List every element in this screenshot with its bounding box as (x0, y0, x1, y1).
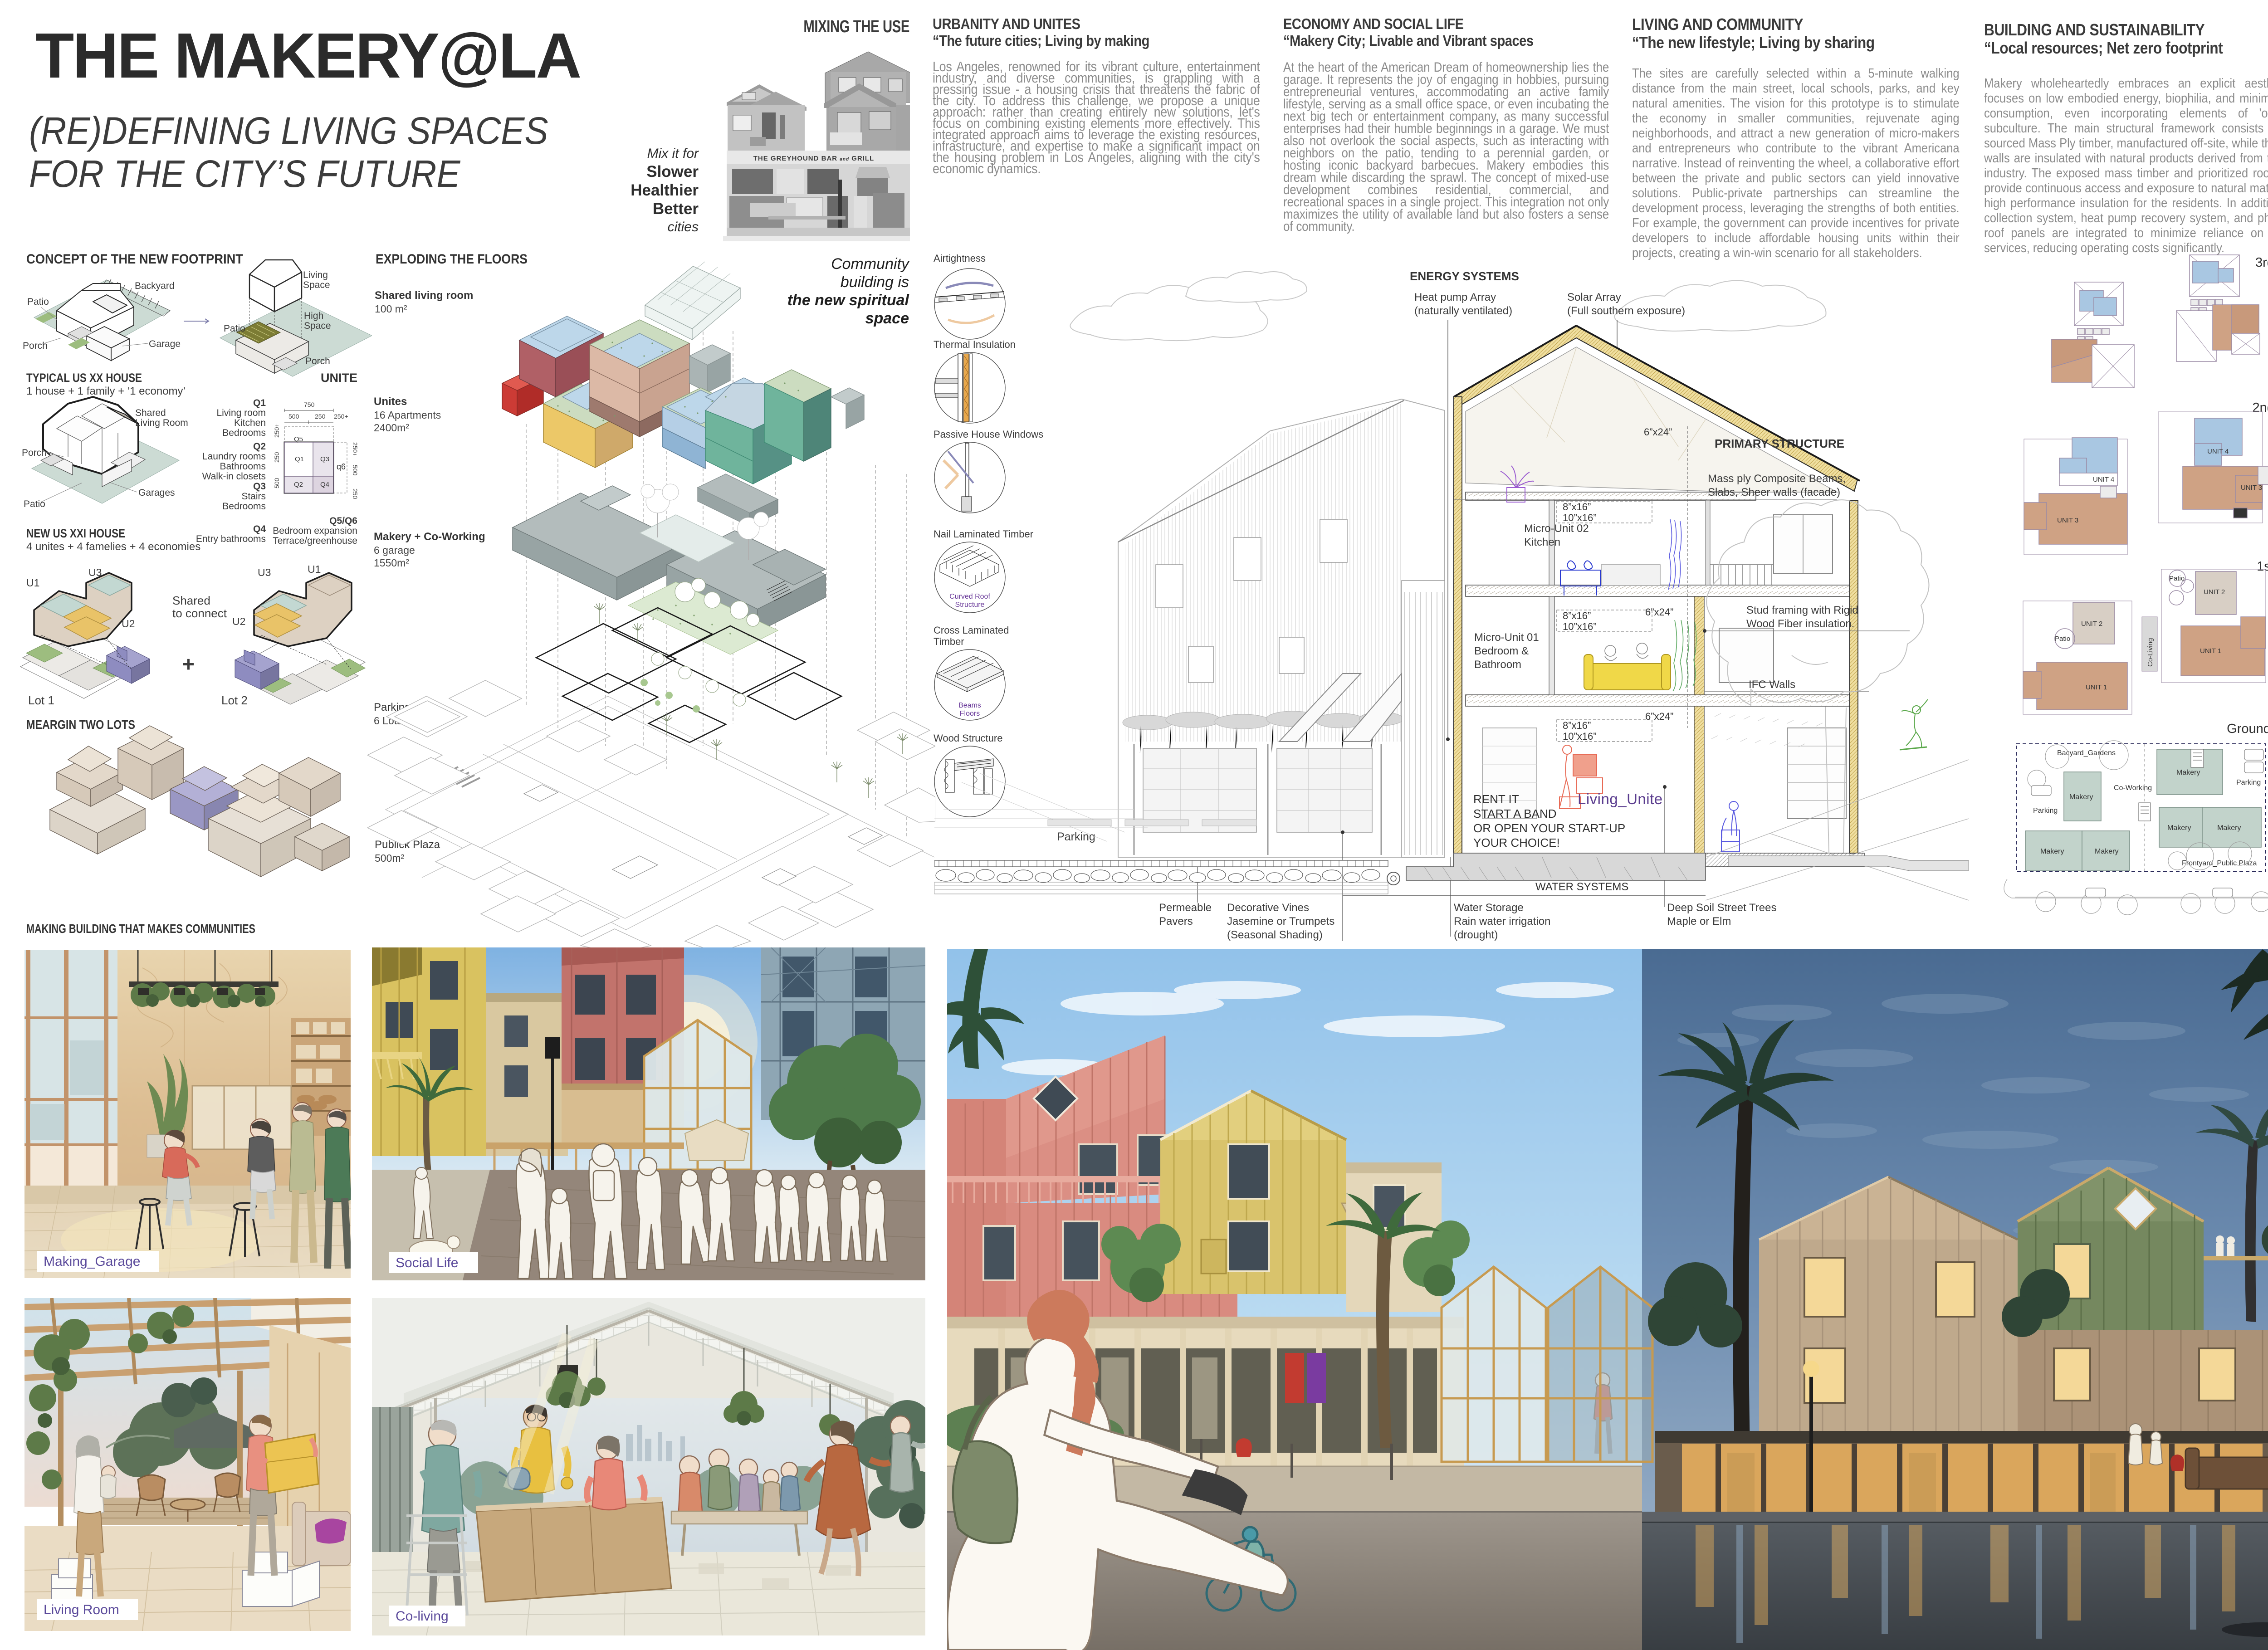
svg-text:250+: 250+ (334, 413, 348, 420)
svg-text:Solar Array: Solar Array (1567, 291, 1621, 303)
svg-text:Bedroom &: Bedroom & (1474, 645, 1529, 657)
svg-text:6”x24”: 6”x24” (1644, 426, 1672, 438)
svg-text:Living Room: Living Room (44, 1602, 119, 1617)
svg-text:Wood Fiber insulation.: Wood Fiber insulation. (1746, 618, 1854, 630)
svg-text:UNIT 2: UNIT 2 (2081, 620, 2102, 628)
svg-text:Bedroom expansion: Bedroom expansion (273, 526, 357, 536)
svg-text:Bathroom: Bathroom (1474, 659, 1521, 671)
svg-text:500: 500 (352, 465, 359, 476)
svg-text:Micro-Unit 02: Micro-Unit 02 (1524, 522, 1589, 535)
svg-text:Parking: Parking (2033, 807, 2058, 815)
svg-text:TYPICAL US XX HOUSE: TYPICAL US XX HOUSE (26, 371, 142, 385)
svg-text:q6: q6 (337, 462, 346, 471)
svg-text:Ground Floor: Ground Floor (2227, 722, 2268, 736)
svg-text:Q4: Q4 (253, 524, 266, 534)
svg-text:U2: U2 (232, 615, 245, 627)
svg-text:Patio: Patio (27, 297, 49, 307)
svg-text:6 garage: 6 garage (374, 544, 415, 556)
svg-text:Micro-Unit 01: Micro-Unit 01 (1474, 631, 1539, 644)
svg-text:START A BAND: START A BAND (1473, 807, 1557, 820)
svg-text:Makery: Makery (2176, 769, 2200, 776)
svg-text:Makery + Co-Working: Makery + Co-Working (374, 531, 485, 543)
svg-text:6”x24”: 6”x24” (1645, 711, 1673, 722)
svg-text:Living room: Living room (216, 408, 266, 418)
svg-text:Space: Space (303, 280, 330, 290)
svg-text:OR OPEN YOUR START-UP: OR OPEN YOUR START-UP (1473, 821, 1625, 835)
svg-text:UNIT 4: UNIT 4 (2093, 476, 2114, 483)
svg-text:Laundry rooms: Laundry rooms (202, 451, 266, 462)
svg-text:Unites: Unites (374, 395, 407, 408)
svg-text:High: High (304, 311, 323, 321)
svg-text:2400m²: 2400m² (374, 422, 409, 434)
svg-text:1550m²: 1550m² (374, 557, 409, 569)
svg-text:Q5: Q5 (294, 435, 303, 443)
svg-text:Permeable: Permeable (1159, 902, 1212, 914)
svg-text:building is: building is (841, 273, 909, 291)
svg-text:Living Room: Living Room (135, 418, 188, 428)
svg-text:Patio: Patio (2169, 575, 2185, 582)
svg-text:Shared: Shared (172, 594, 210, 607)
svg-text:Makery: Makery (2069, 793, 2093, 801)
svg-text:Rain water irrigation: Rain water irrigation (1454, 915, 1550, 928)
svg-text:the new spiritual: the new spiritual (787, 292, 910, 309)
svg-text:Deep Soil Street Trees: Deep Soil Street Trees (1667, 902, 1776, 914)
svg-text:Patio: Patio (224, 323, 245, 334)
svg-text:Terrace/greenhouse: Terrace/greenhouse (273, 536, 357, 546)
svg-text:YOUR CHOICE!: YOUR CHOICE! (1473, 836, 1560, 849)
svg-text:6”x24”: 6”x24” (1645, 606, 1673, 618)
svg-text:Kitchen: Kitchen (1524, 536, 1560, 548)
svg-text:500: 500 (288, 413, 299, 420)
svg-text:10”x16”: 10”x16” (1563, 512, 1597, 523)
svg-text:THE GREYHOUND BAR and GRILL: THE GREYHOUND BAR and GRILL (753, 155, 874, 162)
svg-text:10”x16”: 10”x16” (1563, 621, 1597, 632)
svg-text:4 unites + 4 famelies + 4 econ: 4 unites + 4 famelies + 4 economies (26, 541, 200, 553)
svg-text:500: 500 (273, 478, 280, 488)
svg-text:Stairs: Stairs (241, 491, 266, 502)
svg-text:Q5/Q6: Q5/Q6 (329, 516, 357, 526)
svg-text:UNIT 3: UNIT 3 (2057, 517, 2078, 524)
svg-text:Community: Community (831, 255, 910, 273)
svg-text:RENT IT: RENT IT (1473, 792, 1519, 806)
svg-text:(Full southern exposure): (Full southern exposure) (1567, 305, 1685, 317)
svg-text:750: 750 (304, 401, 315, 408)
svg-text:Decorative Vines: Decorative Vines (1227, 902, 1309, 914)
svg-text:Garages: Garages (138, 488, 175, 498)
svg-text:Space: Space (304, 321, 331, 331)
svg-text:1 house + 1 family + ‘1 econom: 1 house + 1 family + ‘1 economy’ (26, 385, 186, 397)
svg-text:Entry bathrooms: Entry bathrooms (196, 534, 266, 544)
svg-text:Co-living: Co-living (396, 1609, 449, 1624)
svg-text:2nd Floor: 2nd Floor (2252, 400, 2268, 415)
svg-text:Frontyard_Public Plaza: Frontyard_Public Plaza (2182, 859, 2257, 867)
svg-text:Living: Living (303, 270, 328, 280)
svg-text:space: space (865, 310, 909, 327)
svg-text:3rd Floor: 3rd Floor (2255, 255, 2268, 270)
svg-text:Co-Living: Co-Living (2146, 638, 2154, 667)
svg-text:Heat pump Array: Heat pump Array (1414, 291, 1496, 303)
svg-text:Patio: Patio (24, 499, 45, 509)
svg-text:EXPLODING THE FLOORS: EXPLODING THE FLOORS (376, 252, 528, 267)
svg-text:U3: U3 (88, 566, 102, 578)
svg-text:Q3: Q3 (253, 481, 266, 492)
svg-text:Water Storage: Water Storage (1454, 902, 1524, 914)
svg-text:Parking: Parking (2236, 779, 2261, 786)
svg-text:NEW US XXI HOUSE: NEW US XXI HOUSE (26, 527, 125, 540)
svg-text:Shared living room: Shared living room (375, 289, 473, 302)
svg-text:+: + (182, 652, 195, 676)
svg-text:Makery: Makery (2167, 824, 2191, 832)
svg-text:250: 250 (352, 488, 359, 499)
svg-text:to connect: to connect (172, 606, 227, 620)
svg-text:Shared: Shared (135, 408, 166, 418)
svg-text:Makery: Makery (2217, 824, 2241, 832)
svg-text:Q2: Q2 (294, 481, 303, 488)
svg-text:Q3: Q3 (320, 455, 329, 463)
svg-text:500m²: 500m² (375, 852, 405, 864)
svg-text:Bacyard_Gardens: Bacyard_Gardens (2057, 749, 2116, 757)
svg-text:UNIT 4: UNIT 4 (2207, 448, 2229, 455)
svg-text:8”x16”: 8”x16” (1563, 720, 1591, 731)
svg-text:Q4: Q4 (320, 481, 329, 488)
svg-text:U1: U1 (308, 563, 321, 575)
svg-text:8”x16”: 8”x16” (1563, 610, 1591, 621)
svg-text:Garage: Garage (149, 339, 181, 349)
svg-text:Bedrooms: Bedrooms (222, 501, 266, 512)
svg-text:Walk-in closets: Walk-in closets (202, 471, 266, 482)
svg-text:(naturally ventilated): (naturally ventilated) (1414, 305, 1512, 317)
svg-text:Porch: Porch (23, 341, 48, 351)
svg-text:Porch: Porch (305, 356, 330, 366)
svg-text:Maple or Elm: Maple or Elm (1667, 915, 1731, 928)
svg-text:UNIT 1: UNIT 1 (2086, 683, 2107, 691)
svg-text:10”x16”: 10”x16” (1563, 731, 1597, 742)
svg-text:Patio: Patio (2055, 635, 2070, 643)
svg-text:250+: 250+ (352, 442, 359, 457)
svg-text:Making_Garage: Making_Garage (44, 1254, 140, 1269)
svg-text:250+: 250+ (273, 423, 280, 438)
svg-text:Living_Unite: Living_Unite (1578, 791, 1663, 807)
svg-text:IFC Walls: IFC Walls (1749, 679, 1795, 691)
svg-text:Slabs, Sheer walls (facade): Slabs, Sheer walls (facade) (1708, 486, 1840, 498)
svg-text:Mass ply Composite Beams,: Mass ply Composite Beams, (1708, 473, 1846, 485)
svg-text:(Seasonal Shading): (Seasonal Shading) (1227, 929, 1323, 941)
svg-text:Parking: Parking (1057, 830, 1095, 843)
svg-text:Q1: Q1 (253, 398, 266, 408)
svg-text:PRIMARY STRUCTURE: PRIMARY STRUCTURE (1715, 437, 1844, 450)
svg-text:WATER SYSTEMS: WATER SYSTEMS (1535, 881, 1628, 893)
svg-text:Lot 1: Lot 1 (28, 693, 54, 707)
svg-text:8”x16”: 8”x16” (1563, 501, 1591, 513)
svg-text:Kitchen: Kitchen (234, 418, 266, 428)
svg-text:Q2: Q2 (253, 441, 266, 452)
svg-text:Jasemine or Trumpets: Jasemine or Trumpets (1227, 915, 1334, 928)
svg-text:16 Apartments: 16 Apartments (374, 409, 441, 421)
svg-text:UNIT 2: UNIT 2 (2204, 588, 2225, 596)
svg-text:Social Life: Social Life (396, 1255, 458, 1270)
svg-text:Q1: Q1 (295, 455, 304, 463)
svg-text:U2: U2 (122, 618, 135, 630)
svg-text:Porch: Porch (22, 448, 47, 458)
svg-text:Bathrooms: Bathrooms (220, 461, 266, 472)
svg-text:UNITE: UNITE (321, 371, 357, 385)
svg-text:U1: U1 (26, 577, 39, 589)
svg-text:250: 250 (273, 452, 280, 463)
svg-text:Makery: Makery (2040, 848, 2064, 855)
svg-text:Backyard: Backyard (135, 281, 175, 291)
svg-text:100 m²: 100 m² (375, 303, 407, 315)
svg-text:Pavers: Pavers (1159, 915, 1193, 928)
svg-text:MAKING BUILDING THAT MAKES COM: MAKING BUILDING THAT MAKES COMMUNITIES (26, 922, 255, 936)
svg-text:(drought): (drought) (1454, 929, 1498, 941)
svg-text:Stud framing with Rigid: Stud framing with Rigid (1746, 604, 1858, 616)
svg-text:250: 250 (315, 413, 326, 420)
svg-text:Bedrooms: Bedrooms (222, 428, 266, 438)
svg-text:1st Floor: 1st Floor (2257, 559, 2268, 574)
svg-text:Co-Working: Co-Working (2114, 784, 2152, 792)
svg-text:Lot 2: Lot 2 (221, 693, 248, 707)
svg-text:UNIT 3: UNIT 3 (2241, 484, 2262, 492)
svg-text:MEARGIN TWO LOTS: MEARGIN TWO LOTS (26, 718, 135, 732)
svg-text:Makery: Makery (2095, 848, 2118, 855)
svg-text:CONCEPT OF THE NEW FOOTPRINT: CONCEPT OF THE NEW FOOTPRINT (26, 252, 243, 267)
svg-text:U3: U3 (258, 566, 271, 578)
svg-text:UNIT 1: UNIT 1 (2200, 647, 2221, 655)
svg-text:ENERGY SYSTEMS: ENERGY SYSTEMS (1410, 269, 1519, 283)
